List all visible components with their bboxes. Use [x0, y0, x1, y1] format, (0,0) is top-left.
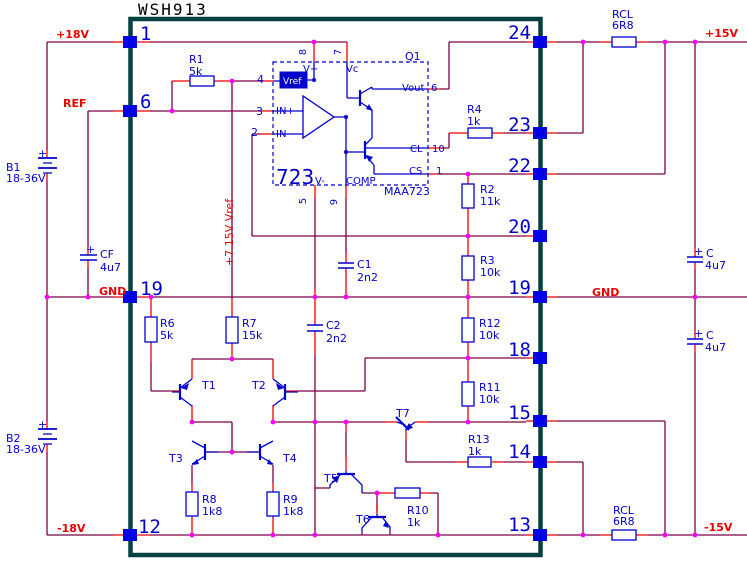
label-ic-in-plus: IN+	[276, 106, 295, 117]
resistors	[145, 37, 636, 540]
label-val-R2: 11k	[480, 195, 501, 208]
label-ic-comp: COMP	[346, 176, 376, 187]
label-val-C-top: 4u7	[705, 259, 726, 272]
label-rail-minus18v: -18V	[57, 522, 86, 535]
schematic-canvas: WSH913+18VREFGND-18V+15VGND-15V+7.15V Vr…	[0, 0, 747, 567]
resistor-R11	[462, 382, 474, 406]
resistor-R12	[462, 318, 474, 342]
label-ic-pin-7: 7	[333, 49, 344, 55]
label-ic-pin-4: 4	[257, 73, 264, 86]
label-val-R13: 1k	[468, 445, 482, 458]
transistor-T3	[192, 441, 218, 465]
label-plus-C-bottom: +	[694, 327, 703, 340]
label-ic-vref: Vref	[283, 77, 302, 87]
label-val-R9: 1k8	[283, 505, 303, 518]
pin-square-13	[533, 529, 547, 541]
wires-outer-right	[557, 42, 747, 535]
label-pin-19-left: 19	[140, 278, 163, 300]
label-ic-v-plus: V+	[303, 64, 318, 75]
label-rail-minus15v: -15V	[704, 521, 733, 534]
label-pin-19-right: 19	[508, 277, 531, 299]
label-pin-12: 12	[138, 516, 161, 538]
pin-square-12	[123, 529, 137, 541]
label-ic-v-minus: V-	[315, 176, 325, 187]
label-ic-vout: Vout	[402, 83, 425, 94]
label-val-R7: 15k	[242, 329, 263, 342]
transistor-T2	[273, 379, 298, 406]
label-ref-T1: T1	[201, 379, 216, 392]
label-val-R1: 5k	[189, 65, 203, 78]
label-plus-CF: +	[86, 243, 95, 256]
label-rail-gnd-left: GND	[99, 285, 126, 298]
label-val-R10: 1k	[407, 516, 421, 529]
label-val-R11: 10k	[479, 393, 500, 406]
label-pin-23: 23	[508, 114, 531, 136]
labels-layer: WSH913+18VREFGND-18V+15VGND-15V+7.15V Vr…	[6, 0, 739, 538]
label-title: WSH913	[138, 0, 208, 19]
label-ref-T4: T4	[282, 452, 297, 465]
label-pin-22: 22	[508, 155, 531, 177]
label-val-C2: 2n2	[326, 332, 347, 345]
label-val-R12: 10k	[479, 329, 500, 342]
label-ic-in-minus: IN-	[276, 129, 290, 140]
pin-square-23	[533, 127, 547, 139]
label-ic-cs: CS	[409, 166, 422, 177]
label-pin-15: 15	[508, 402, 531, 424]
pin-square-6	[123, 105, 137, 117]
label-plus-B2: +	[38, 418, 47, 431]
resistor-R6	[145, 317, 157, 342]
label-ref-Q1: Q1	[405, 50, 421, 63]
resistor-RCL-bottom	[612, 530, 636, 540]
capacitors	[80, 255, 703, 344]
label-pin-24: 24	[508, 22, 531, 44]
resistor-R4	[468, 128, 492, 138]
label-val-C1: 2n2	[357, 271, 378, 284]
pin-square-18	[533, 352, 547, 364]
label-rail-gnd-right: GND	[592, 286, 619, 299]
resistor-R7	[226, 317, 238, 343]
label-ref-T5: T5	[323, 472, 338, 485]
label-ref-C1: C1	[357, 258, 372, 271]
label-ref-T7: T7	[395, 407, 410, 420]
transistor-T4	[247, 441, 273, 465]
label-ic-vc: Vc	[346, 64, 358, 75]
label-ref-T3: T3	[168, 452, 183, 465]
label-val-C-bottom: 4u7	[705, 341, 726, 354]
capacitor-C2	[307, 325, 323, 331]
ic-723-pass-transistor	[360, 87, 373, 111]
resistor-R8	[186, 492, 198, 516]
label-val-R3: 10k	[480, 266, 501, 279]
label-val-R4: 1k	[467, 115, 481, 128]
label-pin-13: 13	[508, 514, 531, 536]
pin-square-24	[533, 36, 547, 48]
label-ref-T6: T6	[355, 513, 370, 526]
label-ic-part: MAA723	[384, 185, 430, 198]
label-ic-pin-10: 10	[432, 144, 445, 155]
label-val-R6: 5k	[160, 329, 174, 342]
label-ic-pin-9: 9	[329, 199, 340, 205]
label-ic-pin-5: 5	[298, 198, 309, 204]
label-plus-C-top: +	[694, 245, 703, 258]
label-ic-cl: CL	[410, 144, 423, 155]
pin-square-14	[533, 456, 547, 468]
label-plus-B1: +	[38, 147, 47, 160]
transistor-T1	[172, 379, 192, 406]
label-val-CF: 4u7	[100, 261, 121, 274]
resistor-R3	[462, 256, 474, 280]
label-ic-pin-1: 1	[436, 166, 442, 177]
label-ref-C2: C2	[326, 319, 341, 332]
label-rail-plus15v: +15V	[705, 27, 739, 40]
label-pin-20: 20	[508, 216, 531, 238]
pin-square-22	[533, 168, 547, 180]
label-val-B1: 18-36V	[6, 172, 46, 185]
resistor-R2	[462, 184, 474, 208]
label-pin-6: 6	[140, 91, 151, 113]
capacitor-C1	[338, 263, 354, 268]
label-pin-14: 14	[508, 441, 531, 463]
label-ref-CF: CF	[100, 248, 114, 261]
label-ic-pin-3: 3	[256, 105, 263, 118]
label-val-RCL-bottom: 6R8	[613, 515, 635, 528]
label-ic-pin-6: 6	[431, 83, 437, 94]
label-rail-ref: REF	[63, 97, 87, 110]
label-pin-1: 1	[140, 23, 151, 45]
ic-723-opamp	[303, 96, 334, 138]
label-ref-T2: T2	[251, 379, 266, 392]
label-rail-plus18v: +18V	[56, 28, 90, 41]
pin-square-1	[123, 36, 137, 48]
pin-square-20	[533, 230, 547, 242]
pin-square-19-right	[533, 291, 547, 303]
label-val-B2: 18-36V	[6, 443, 46, 456]
label-pin-18: 18	[508, 339, 531, 361]
resistor-R9	[267, 492, 279, 516]
label-ic-pin-8: 8	[298, 49, 309, 55]
label-val-RCL-top: 6R8	[612, 19, 634, 32]
label-ic-designator: 723	[276, 165, 314, 189]
label-net-vref-715: +7.15V Vref	[223, 198, 236, 266]
label-ic-pin-2: 2	[251, 126, 258, 139]
pin-square-15	[533, 415, 547, 427]
resistor-R13	[468, 457, 491, 467]
resistor-RCL-top	[612, 37, 636, 47]
resistor-R10	[395, 488, 420, 498]
ic-723-limit-transistor	[365, 138, 374, 165]
label-val-R8: 1k8	[202, 505, 222, 518]
